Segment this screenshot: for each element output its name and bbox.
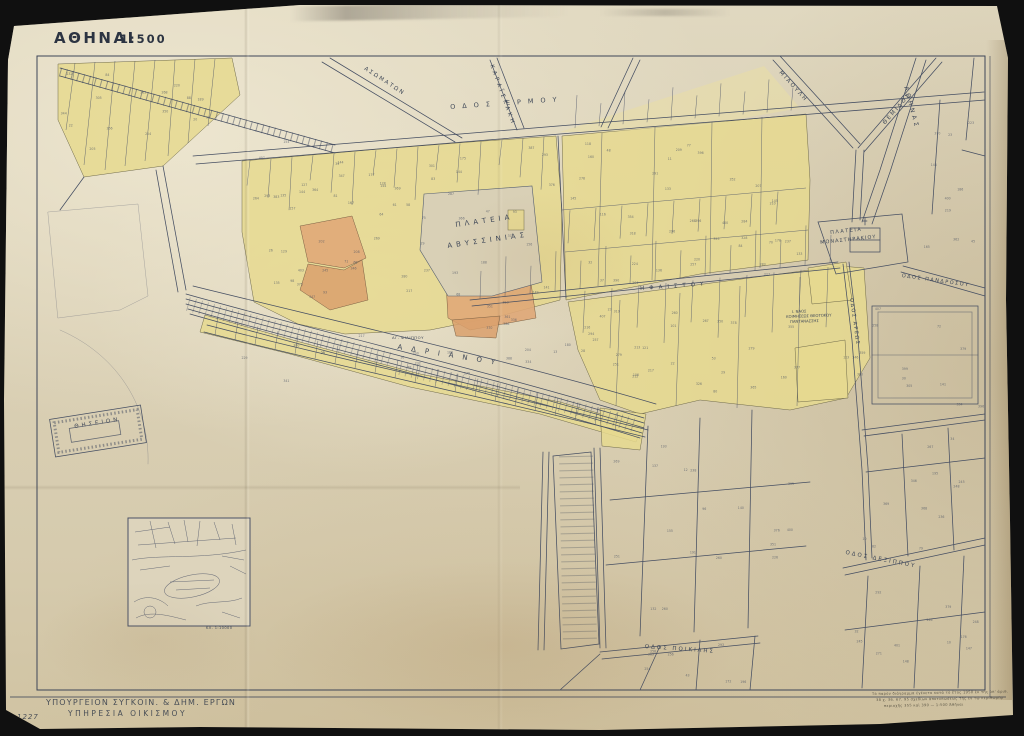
map-sheet-paper: 3502203563628825434422842020518923226830… [0, 0, 1024, 736]
svg-text:344: 344 [61, 112, 67, 116]
svg-text:37: 37 [600, 278, 604, 282]
svg-text:379: 379 [960, 347, 966, 351]
svg-text:191: 191 [690, 551, 696, 555]
svg-text:390: 390 [613, 279, 619, 283]
svg-text:180: 180 [565, 343, 571, 347]
svg-text:167: 167 [348, 201, 354, 205]
svg-text:45: 45 [971, 240, 975, 244]
svg-text:283: 283 [760, 263, 766, 267]
svg-text:245: 245 [856, 640, 862, 644]
svg-text:237: 237 [785, 240, 791, 244]
svg-text:207: 207 [755, 184, 761, 188]
svg-text:400: 400 [787, 528, 793, 532]
svg-text:271: 271 [876, 651, 882, 655]
station-building [553, 452, 599, 649]
svg-text:58: 58 [406, 203, 410, 207]
svg-text:395: 395 [788, 482, 794, 486]
svg-text:223: 223 [968, 121, 974, 125]
svg-text:267: 267 [927, 445, 933, 449]
svg-text:236: 236 [938, 515, 944, 519]
svg-text:407: 407 [875, 307, 881, 311]
svg-text:204: 204 [525, 348, 531, 352]
svg-text:128: 128 [380, 182, 386, 186]
svg-text:80: 80 [713, 390, 717, 394]
svg-text:23: 23 [948, 133, 952, 137]
svg-text:47: 47 [486, 210, 490, 214]
svg-text:106: 106 [633, 373, 639, 377]
map-scale: 1:500 [120, 33, 167, 46]
svg-text:370: 370 [486, 326, 492, 330]
map-graphic: 3502203563628825434422842020518923226830… [0, 0, 1024, 736]
svg-text:388: 388 [506, 357, 512, 361]
svg-text:318: 318 [630, 232, 636, 236]
svg-text:286: 286 [503, 322, 509, 326]
svg-text:257: 257 [690, 263, 696, 267]
svg-text:82: 82 [872, 544, 876, 548]
svg-text:157: 157 [289, 206, 295, 210]
svg-text:29: 29 [721, 371, 725, 375]
svg-text:232: 232 [415, 362, 421, 366]
svg-text:10: 10 [862, 537, 866, 541]
svg-text:77: 77 [687, 143, 691, 147]
svg-text:355: 355 [713, 237, 719, 241]
svg-text:144: 144 [931, 163, 937, 167]
svg-text:364: 364 [312, 188, 318, 192]
svg-text:375: 375 [297, 283, 303, 287]
svg-text:251: 251 [614, 554, 620, 558]
svg-text:189: 189 [198, 97, 204, 101]
svg-text:96: 96 [702, 507, 706, 511]
svg-text:10: 10 [947, 640, 951, 644]
svg-text:238: 238 [690, 469, 696, 473]
svg-text:68: 68 [456, 293, 460, 297]
svg-text:251: 251 [613, 363, 619, 367]
svg-text:362: 362 [953, 238, 959, 242]
svg-text:79: 79 [919, 547, 923, 551]
svg-text:296: 296 [669, 229, 675, 233]
svg-text:232: 232 [66, 72, 72, 76]
svg-text:84: 84 [739, 244, 743, 248]
svg-text:22: 22 [671, 362, 675, 366]
svg-text:403: 403 [298, 268, 304, 272]
svg-text:220: 220 [174, 84, 180, 88]
svg-text:127: 127 [301, 183, 307, 187]
svg-text:155: 155 [667, 529, 673, 533]
svg-text:269: 269 [374, 237, 380, 241]
svg-text:93: 93 [513, 210, 517, 214]
svg-text:369: 369 [883, 502, 889, 506]
svg-text:248: 248 [953, 485, 959, 489]
svg-text:300: 300 [293, 343, 299, 347]
svg-text:149: 149 [533, 290, 539, 294]
svg-text:396: 396 [698, 151, 704, 155]
svg-text:346: 346 [350, 267, 356, 271]
svg-text:254: 254 [644, 667, 650, 671]
svg-text:369: 369 [395, 187, 401, 191]
svg-text:147: 147 [966, 646, 972, 650]
scanned-map-photo: 3502203563628825434422842020518923226830… [0, 0, 1024, 736]
svg-text:336: 336 [511, 318, 517, 322]
svg-text:81: 81 [333, 194, 337, 198]
svg-text:376: 376 [774, 529, 780, 533]
svg-text:328: 328 [741, 236, 747, 240]
svg-text:355: 355 [788, 325, 794, 329]
svg-text:248: 248 [973, 620, 979, 624]
svg-text:396: 396 [695, 219, 701, 223]
svg-text:156: 156 [526, 243, 532, 247]
svg-text:22: 22 [69, 123, 73, 127]
svg-text:280: 280 [401, 275, 407, 279]
svg-text:334: 334 [525, 360, 531, 364]
svg-text:245: 245 [322, 268, 328, 272]
svg-text:133: 133 [796, 252, 802, 256]
svg-text:177: 177 [368, 173, 374, 177]
svg-text:84: 84 [105, 73, 109, 77]
svg-text:132: 132 [650, 607, 656, 611]
svg-text:383: 383 [273, 195, 279, 199]
svg-text:362: 362 [140, 91, 146, 95]
thiseion-temple [50, 405, 147, 457]
svg-text:396: 396 [978, 405, 984, 409]
svg-text:83: 83 [431, 177, 435, 181]
svg-text:401: 401 [894, 644, 900, 648]
svg-text:226: 226 [772, 556, 778, 560]
svg-text:93: 93 [323, 291, 327, 295]
svg-text:135: 135 [280, 193, 286, 197]
svg-text:359: 359 [859, 351, 865, 355]
svg-text:34: 34 [950, 437, 954, 441]
svg-text:217: 217 [406, 289, 412, 293]
svg-text:377: 377 [794, 365, 800, 369]
svg-text:72: 72 [937, 325, 941, 329]
svg-text:91: 91 [206, 115, 210, 119]
svg-text:352: 352 [730, 177, 736, 181]
svg-text:193: 193 [661, 445, 667, 449]
svg-text:301: 301 [429, 164, 435, 168]
svg-text:361: 361 [504, 315, 510, 319]
svg-text:43: 43 [685, 674, 689, 678]
svg-text:365: 365 [750, 386, 756, 390]
svg-text:28: 28 [581, 349, 585, 353]
svg-text:246: 246 [926, 618, 932, 622]
svg-text:165: 165 [924, 245, 930, 249]
svg-text:175: 175 [460, 156, 466, 160]
svg-text:123: 123 [843, 355, 849, 359]
svg-text:217: 217 [648, 368, 654, 372]
svg-text:279: 279 [616, 353, 622, 357]
svg-text:202: 202 [319, 240, 325, 244]
svg-text:279: 279 [748, 347, 754, 351]
svg-text:292: 292 [875, 591, 881, 595]
svg-text:219: 219 [945, 208, 951, 212]
svg-text:26: 26 [321, 351, 325, 355]
svg-text:351: 351 [487, 304, 493, 308]
svg-text:284: 284 [741, 219, 747, 223]
svg-text:141: 141 [543, 285, 549, 289]
inset-caption: ΚΛ. 1:10000 [206, 627, 232, 631]
svg-text:326: 326 [696, 382, 702, 386]
svg-text:13: 13 [553, 350, 557, 354]
svg-text:257: 257 [592, 338, 598, 342]
svg-text:291: 291 [652, 171, 658, 175]
svg-text:140: 140 [738, 506, 744, 510]
svg-text:376: 376 [549, 183, 555, 187]
svg-text:53: 53 [712, 356, 716, 360]
svg-text:26: 26 [269, 249, 273, 253]
agency-name: ΥΠΟΥΡΓΕΙΟΝ ΣΥΓΚΟΙΝ. & ΔΗΜ. ΕΡΓΩΝ [46, 699, 236, 708]
svg-text:305: 305 [906, 384, 912, 388]
svg-text:379: 379 [945, 605, 951, 609]
svg-text:145: 145 [570, 197, 576, 201]
svg-text:407: 407 [599, 315, 605, 319]
svg-text:20: 20 [193, 117, 197, 121]
svg-text:256: 256 [668, 653, 674, 657]
svg-text:29: 29 [421, 242, 425, 246]
svg-text:347: 347 [309, 295, 315, 299]
blocks-layer [58, 58, 870, 450]
agency-department: ΥΠΗΡΕΣΙΑ ΟΙΚΙΣΜΟΥ [68, 710, 187, 718]
svg-text:16: 16 [400, 355, 404, 359]
svg-text:101: 101 [670, 324, 676, 328]
svg-text:176: 176 [961, 635, 967, 639]
svg-text:30: 30 [902, 377, 906, 381]
svg-text:216: 216 [584, 326, 590, 330]
svg-text:294: 294 [588, 332, 594, 336]
svg-text:160: 160 [781, 375, 787, 379]
svg-text:368: 368 [921, 506, 927, 510]
svg-text:260: 260 [672, 311, 678, 315]
svg-text:172: 172 [725, 679, 731, 683]
svg-text:144: 144 [337, 160, 343, 164]
svg-text:407: 407 [259, 156, 265, 160]
svg-text:133: 133 [665, 187, 671, 191]
svg-text:12: 12 [684, 468, 688, 472]
svg-text:378: 378 [731, 321, 737, 325]
svg-text:350: 350 [162, 110, 168, 114]
svg-text:98: 98 [290, 279, 294, 283]
svg-text:387: 387 [528, 146, 534, 150]
svg-text:323: 323 [503, 300, 509, 304]
svg-text:148: 148 [903, 660, 909, 664]
svg-text:400: 400 [722, 221, 728, 225]
svg-text:135: 135 [274, 281, 280, 285]
svg-text:260: 260 [662, 607, 668, 611]
svg-text:258: 258 [872, 323, 878, 327]
svg-text:193: 193 [452, 271, 458, 275]
svg-text:350: 350 [717, 319, 723, 323]
svg-text:178: 178 [775, 238, 781, 242]
svg-text:118: 118 [585, 142, 591, 146]
svg-text:354: 354 [628, 215, 634, 219]
svg-text:195: 195 [932, 472, 938, 476]
svg-text:293: 293 [264, 194, 270, 198]
svg-text:363: 363 [648, 653, 654, 657]
svg-text:154: 154 [283, 140, 289, 144]
sheet-number: Δ 1227 [8, 714, 39, 722]
svg-text:305: 305 [96, 96, 102, 100]
svg-text:144: 144 [456, 170, 462, 174]
svg-text:137: 137 [652, 464, 658, 468]
svg-text:64: 64 [379, 212, 383, 216]
svg-text:293: 293 [718, 643, 724, 647]
svg-text:71: 71 [344, 259, 348, 263]
svg-text:275: 275 [464, 371, 470, 375]
svg-text:188: 188 [481, 261, 487, 265]
svg-text:204: 204 [632, 281, 638, 285]
svg-text:70: 70 [769, 241, 773, 245]
svg-text:237: 237 [424, 269, 430, 273]
svg-text:145: 145 [772, 199, 778, 203]
svg-text:75: 75 [422, 216, 426, 220]
svg-text:278: 278 [579, 176, 585, 180]
svg-text:58: 58 [407, 366, 411, 370]
svg-text:196: 196 [740, 680, 746, 684]
svg-text:224: 224 [632, 262, 638, 266]
svg-text:208: 208 [354, 250, 360, 254]
svg-text:144: 144 [299, 190, 305, 194]
svg-text:68: 68 [353, 260, 357, 264]
svg-text:269: 269 [613, 460, 619, 464]
svg-text:346: 346 [852, 355, 858, 359]
svg-text:220: 220 [694, 258, 700, 262]
svg-text:347: 347 [339, 174, 345, 178]
svg-text:136: 136 [656, 269, 662, 273]
svg-text:121: 121 [642, 346, 648, 350]
svg-text:209: 209 [676, 148, 682, 152]
svg-text:205: 205 [89, 147, 95, 151]
svg-text:260: 260 [716, 556, 722, 560]
svg-text:245: 245 [959, 480, 965, 484]
svg-text:319: 319 [614, 310, 620, 314]
svg-text:399: 399 [902, 367, 908, 371]
svg-text:11: 11 [668, 157, 672, 161]
svg-text:268: 268 [161, 90, 167, 94]
svg-text:213: 213 [634, 345, 640, 349]
svg-text:356: 356 [106, 126, 112, 130]
svg-text:287: 287 [448, 192, 454, 196]
svg-text:293: 293 [542, 153, 548, 157]
inset-overview-map [128, 518, 250, 626]
svg-text:141: 141 [940, 382, 946, 386]
svg-text:160: 160 [588, 155, 594, 159]
svg-text:48: 48 [607, 149, 611, 153]
svg-text:351: 351 [770, 543, 776, 547]
svg-text:370: 370 [934, 131, 940, 135]
svg-text:116: 116 [600, 213, 606, 217]
svg-text:360: 360 [857, 372, 863, 376]
svg-text:229: 229 [242, 356, 248, 360]
svg-text:346: 346 [911, 479, 917, 483]
svg-text:217: 217 [359, 334, 365, 338]
svg-text:254: 254 [145, 132, 151, 136]
svg-text:186: 186 [957, 187, 963, 191]
svg-text:32: 32 [588, 260, 592, 264]
svg-text:23: 23 [608, 307, 612, 311]
svg-text:61: 61 [393, 203, 397, 207]
svg-text:88: 88 [187, 96, 191, 100]
svg-text:264: 264 [253, 197, 259, 201]
svg-text:400: 400 [945, 197, 951, 201]
svg-text:227: 227 [764, 272, 770, 276]
landmark-label-ag-filippou: ΑΓ. ΦΙΛΙΠΠΟΥ [392, 336, 424, 340]
svg-text:267: 267 [703, 319, 709, 323]
svg-text:334: 334 [956, 402, 962, 406]
svg-text:341: 341 [283, 379, 289, 383]
svg-text:32: 32 [855, 629, 859, 633]
svg-text:129: 129 [281, 250, 287, 254]
